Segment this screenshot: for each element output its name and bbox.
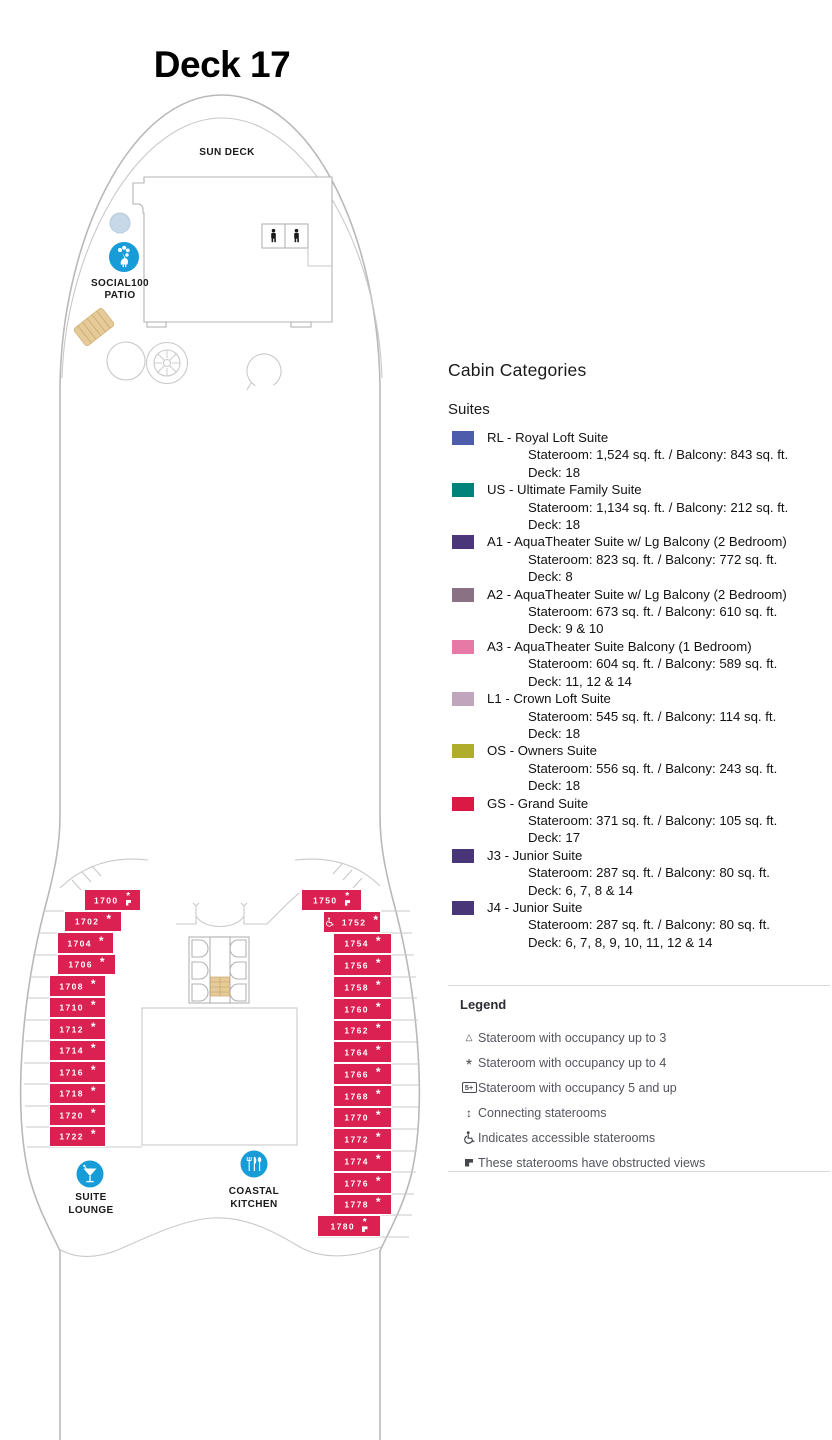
category-size: Stateroom: 556 sq. ft. / Balcony: 243 sq… <box>487 760 777 777</box>
category-deck: Deck: 6, 7, 8, 9, 10, 11, 12 & 14 <box>487 934 770 951</box>
legend-item-text: These staterooms have obstructed views <box>478 1156 705 1170</box>
category-item: L1 - Crown Loft SuiteStateroom: 545 sq. … <box>448 690 832 742</box>
category-deck: Deck: 18 <box>487 464 788 481</box>
cabin-1778: 1778* <box>333 1194 392 1216</box>
cabin-number: 1774 <box>344 1156 369 1166</box>
cabin-1702: 1702* <box>64 911 122 933</box>
sun-deck-label: SUN DECK <box>199 147 255 158</box>
cabin-number: 1758 <box>344 982 369 992</box>
legend-item-text: Stateroom with occupancy 5 and up <box>478 1081 677 1095</box>
coastal-kitchen-icon <box>241 1151 268 1178</box>
cabin-number: 1708 <box>59 981 84 991</box>
sun-deck-tab-left <box>147 322 166 327</box>
occupancy-4-icon: * <box>376 938 381 944</box>
suites-subheading: Suites <box>448 401 832 418</box>
category-item: GS - Grand SuiteStateroom: 371 sq. ft. /… <box>448 795 832 847</box>
category-size: Stateroom: 823 sq. ft. / Balcony: 772 sq… <box>487 551 787 568</box>
category-item: A2 - AquaTheater Suite w/ Lg Balcony (2 … <box>448 586 832 638</box>
legend-item-text: Connecting staterooms <box>478 1106 607 1120</box>
occupancy-4-icon: * <box>376 1112 381 1118</box>
category-deck: Deck: 17 <box>487 829 777 846</box>
legend-item: ↕Connecting staterooms <box>460 1100 830 1125</box>
occupancy-5plus-icon: 5+ <box>462 1082 477 1093</box>
category-deck: Deck: 18 <box>487 777 777 794</box>
cabin-number: 1718 <box>59 1089 84 1099</box>
category-label: A2 - AquaTheater Suite w/ Lg Balcony (2 … <box>487 586 787 603</box>
category-label: US - Ultimate Family Suite <box>487 481 788 498</box>
open-ring-circle <box>241 348 287 394</box>
hot-tub-circle <box>110 213 130 233</box>
cabin-number: 1764 <box>344 1048 369 1058</box>
legend-item-text: Stateroom with occupancy up to 3 <box>478 1031 666 1045</box>
category-size: Stateroom: 1,524 sq. ft. / Balcony: 843 … <box>487 446 788 463</box>
legend-item-text: Indicates accessible staterooms <box>478 1131 655 1145</box>
category-item: A1 - AquaTheater Suite w/ Lg Balcony (2 … <box>448 533 832 585</box>
occupancy-4-icon: * <box>91 1024 96 1030</box>
occupancy-4-icon: * <box>345 894 349 899</box>
legend-heading: Legend <box>460 997 830 1012</box>
occupancy-4-icon: * <box>376 1156 381 1162</box>
occupancy-4-icon: * <box>376 1134 381 1140</box>
suite-lounge-label-1: SUITE <box>75 1192 106 1203</box>
cabin-number: 1766 <box>344 1069 369 1079</box>
obstructed-view-icon <box>345 900 351 906</box>
suite-lounge-icon <box>77 1161 104 1188</box>
cabin-1712: 1712* <box>49 1018 106 1040</box>
cabin-1768: 1768* <box>333 1085 392 1107</box>
occupancy-4-icon: * <box>91 1131 96 1137</box>
category-label: RL - Royal Loft Suite <box>487 429 788 446</box>
category-label: L1 - Crown Loft Suite <box>487 690 776 707</box>
cabin-1770: 1770* <box>333 1107 392 1129</box>
social100-label: SOCIAL100 <box>91 278 149 289</box>
cabin-1700: 1700* <box>84 889 141 911</box>
cabin-1772: 1772* <box>333 1128 392 1150</box>
cabin-1766: 1766* <box>333 1063 392 1085</box>
legend-item: △Stateroom with occupancy up to 3 <box>460 1025 830 1050</box>
cabin-1710: 1710* <box>49 997 106 1019</box>
category-deck: Deck: 18 <box>487 516 788 533</box>
occupancy-4-icon: * <box>376 1178 381 1184</box>
occupancy-4-icon: * <box>126 894 130 899</box>
cabin-number: 1750 <box>313 895 338 905</box>
sun-deck-tab-right <box>291 322 311 327</box>
category-color-swatch <box>452 483 474 497</box>
occupancy-4-icon: * <box>91 1088 96 1094</box>
cabin-1752: 1752* <box>323 911 381 933</box>
cabin-number: 1712 <box>59 1024 84 1034</box>
occupancy-4-icon: * <box>91 1067 96 1073</box>
occupancy-4-icon: * <box>106 916 111 922</box>
cabin-number: 1768 <box>344 1091 369 1101</box>
cabin-number: 1772 <box>344 1135 369 1145</box>
category-item: RL - Royal Loft SuiteStateroom: 1,524 sq… <box>448 429 832 481</box>
legend-item: Indicates accessible staterooms <box>460 1125 830 1150</box>
elevator-lobby <box>176 893 299 1003</box>
occupancy-4-icon: * <box>376 1047 381 1053</box>
coastal-kitchen-room <box>142 1008 297 1145</box>
cabin-number: 1722 <box>59 1132 84 1142</box>
cabin-1776: 1776* <box>333 1172 392 1194</box>
cabin-1760: 1760* <box>333 998 392 1020</box>
cabin-number: 1778 <box>344 1200 369 1210</box>
category-label: A1 - AquaTheater Suite w/ Lg Balcony (2 … <box>487 533 787 550</box>
cabin-number: 1710 <box>59 1003 84 1013</box>
legend-item: 5+Stateroom with occupancy 5 and up <box>460 1075 830 1100</box>
category-color-swatch <box>452 692 474 706</box>
category-item: J3 - Junior SuiteStateroom: 287 sq. ft. … <box>448 847 832 899</box>
cabin-number: 1700 <box>94 895 119 905</box>
occupancy-4-icon: * <box>91 1002 96 1008</box>
category-deck: Deck: 9 & 10 <box>487 620 787 637</box>
connecting-staterooms-icon: ↕ <box>466 1106 472 1120</box>
legend-list: △Stateroom with occupancy up to 3*Stater… <box>460 1025 830 1175</box>
occupancy-4-icon: * <box>376 960 381 966</box>
bow-stairs <box>73 307 115 347</box>
occupancy-4-icon: * <box>373 917 378 923</box>
cabin-1708: 1708* <box>49 975 106 997</box>
category-deck: Deck: 18 <box>487 725 776 742</box>
category-size: Stateroom: 545 sq. ft. / Balcony: 114 sq… <box>487 708 776 725</box>
category-size: Stateroom: 287 sq. ft. / Balcony: 80 sq.… <box>487 864 770 881</box>
coastal-kitchen-label-2: KITCHEN <box>230 1199 277 1210</box>
occupancy-4-icon: * <box>99 938 104 944</box>
cabin-number: 1760 <box>344 1004 369 1014</box>
occupancy-4-icon: * <box>91 1110 96 1116</box>
category-size: Stateroom: 1,134 sq. ft. / Balcony: 212 … <box>487 499 788 516</box>
spiral-stair-circle <box>147 343 188 384</box>
patio-label: PATIO <box>104 290 135 301</box>
category-item: J4 - Junior SuiteStateroom: 287 sq. ft. … <box>448 899 832 951</box>
legend-item: These staterooms have obstructed views <box>460 1150 830 1175</box>
cabin-number: 1754 <box>344 939 369 949</box>
category-label: J3 - Junior Suite <box>487 847 770 864</box>
occupancy-4-icon: * <box>376 1069 381 1075</box>
category-size: Stateroom: 371 sq. ft. / Balcony: 105 sq… <box>487 812 777 829</box>
cabin-number: 1752 <box>342 917 367 927</box>
occupancy-4-icon: * <box>376 1004 381 1010</box>
category-color-swatch <box>452 535 474 549</box>
category-item: OS - Owners SuiteStateroom: 556 sq. ft. … <box>448 742 832 794</box>
cabin-number: 1716 <box>59 1067 84 1077</box>
cabin-1756: 1756* <box>333 954 392 976</box>
cabin-1720: 1720* <box>49 1104 106 1126</box>
cabin-1764: 1764* <box>333 1041 392 1063</box>
category-label: J4 - Junior Suite <box>487 899 770 916</box>
cabin-1714: 1714* <box>49 1040 106 1062</box>
occupancy-4-icon: * <box>376 1091 381 1097</box>
category-item: A3 - AquaTheater Suite Balcony (1 Bedroo… <box>448 638 832 690</box>
legend-item-text: Stateroom with occupancy up to 4 <box>478 1056 666 1070</box>
cabin-1750: 1750* <box>301 889 362 911</box>
suite-lounge-label-2: LOUNGE <box>68 1205 113 1216</box>
cabin-number: 1776 <box>344 1178 369 1188</box>
social100-patio-icon <box>109 242 139 272</box>
occupancy-4-icon: * <box>363 1220 367 1225</box>
category-color-swatch <box>452 640 474 654</box>
occupancy-3-icon: △ <box>466 1032 473 1043</box>
cabin-1706: 1706* <box>57 954 116 976</box>
cabin-1722: 1722* <box>49 1126 106 1148</box>
occupancy-4-icon: * <box>376 982 381 988</box>
legend-item: *Stateroom with occupancy up to 4 <box>460 1050 830 1075</box>
cabin-number: 1702 <box>75 917 100 927</box>
accessible-icon <box>326 917 334 927</box>
category-list: RL - Royal Loft SuiteStateroom: 1,524 sq… <box>448 429 832 951</box>
obstructed-view-icon <box>362 1226 368 1232</box>
cabin-number: 1770 <box>344 1113 369 1123</box>
cabin-1704: 1704* <box>57 932 114 954</box>
obstructed-view-icon <box>126 900 132 906</box>
cabin-number: 1714 <box>59 1046 84 1056</box>
legend-panel: Legend △Stateroom with occupancy up to 3… <box>448 985 830 1172</box>
elevator-stairs <box>211 977 230 996</box>
cabin-categories-panel: Cabin Categories Suites RL - Royal Loft … <box>448 360 832 951</box>
category-label: A3 - AquaTheater Suite Balcony (1 Bedroo… <box>487 638 777 655</box>
occupancy-4-icon: * <box>91 981 96 987</box>
occupancy-4-icon: * <box>376 1199 381 1205</box>
obstructed-view-icon <box>465 1159 473 1167</box>
deck-circle <box>107 342 145 380</box>
category-size: Stateroom: 287 sq. ft. / Balcony: 80 sq.… <box>487 916 770 933</box>
accessible-icon <box>464 1131 475 1144</box>
category-label: OS - Owners Suite <box>487 742 777 759</box>
cabin-1718: 1718* <box>49 1083 106 1105</box>
cabin-1716: 1716* <box>49 1061 106 1083</box>
category-color-swatch <box>452 849 474 863</box>
cabin-number: 1720 <box>59 1110 84 1120</box>
category-deck: Deck: 8 <box>487 568 787 585</box>
cabin-number: 1780 <box>330 1222 355 1232</box>
occupancy-4-icon: * <box>376 1025 381 1031</box>
category-deck: Deck: 6, 7, 8 & 14 <box>487 882 770 899</box>
cabin-1754: 1754* <box>333 933 392 955</box>
cabin-number: 1756 <box>344 961 369 971</box>
category-color-swatch <box>452 744 474 758</box>
cabin-number: 1704 <box>67 938 92 948</box>
cabin-number: 1706 <box>68 960 93 970</box>
category-color-swatch <box>452 797 474 811</box>
cabin-1774: 1774* <box>333 1150 392 1172</box>
occupancy-4-icon: * <box>466 1062 472 1070</box>
cabin-1780: 1780* <box>317 1215 381 1237</box>
cabin-number: 1762 <box>344 1026 369 1036</box>
category-size: Stateroom: 673 sq. ft. / Balcony: 610 sq… <box>487 603 787 620</box>
category-label: GS - Grand Suite <box>487 795 777 812</box>
category-deck: Deck: 11, 12 & 14 <box>487 673 777 690</box>
occupancy-4-icon: * <box>91 1045 96 1051</box>
coastal-kitchen-label-1: COASTAL <box>229 1186 279 1197</box>
occupancy-4-icon: * <box>100 959 105 965</box>
sun-deck-room <box>133 177 332 322</box>
categories-heading: Cabin Categories <box>448 360 832 381</box>
cabin-1762: 1762* <box>333 1020 392 1042</box>
category-color-swatch <box>452 431 474 445</box>
category-color-swatch <box>452 901 474 915</box>
deck-plan-page: Deck 17 <box>0 0 832 1440</box>
category-color-swatch <box>452 588 474 602</box>
cabin-1758: 1758* <box>333 976 392 998</box>
category-item: US - Ultimate Family SuiteStateroom: 1,1… <box>448 481 832 533</box>
category-size: Stateroom: 604 sq. ft. / Balcony: 589 sq… <box>487 655 777 672</box>
balcony-curves <box>60 859 380 890</box>
